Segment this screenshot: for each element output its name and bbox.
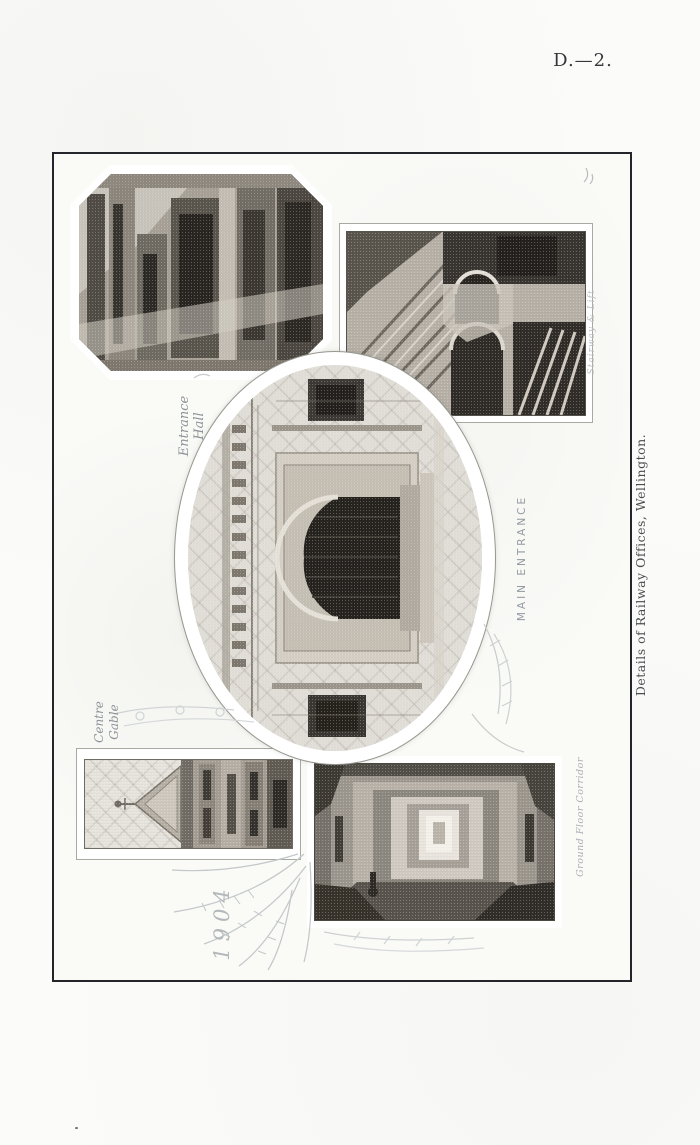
label-entrance-hall-line2: Hall (192, 396, 207, 456)
label-entrance-hall: Entrance Hall (176, 381, 208, 471)
photo-ground-floor-corridor (315, 764, 554, 920)
main-entrance-image (188, 365, 482, 751)
scanned-plate-page: D.—2. (0, 0, 700, 1145)
label-main-entrance: MAIN ENTRANCE (514, 498, 530, 618)
label-centre-gable-line2: Gable (107, 701, 122, 743)
plate-frame: Entrance Hall Stairway & Lift MAIN ENTRA… (52, 152, 632, 982)
label-year: 1904 (209, 892, 235, 952)
photo-mat-entrance-hall (70, 165, 332, 380)
centre-gable-image (85, 760, 292, 848)
photo-entrance-hall (79, 174, 323, 371)
plate-caption: Details of Railway Offices, Wellington. (632, 435, 648, 695)
photo-main-entrance (188, 365, 482, 751)
label-centre-gable: Centre Gable (92, 687, 122, 757)
entrance-hall-image (79, 174, 323, 371)
scan-speck (75, 1127, 78, 1129)
plate-number: D.—2. (538, 50, 628, 71)
label-ground-floor-corridor: Ground Floor Corridor (573, 762, 587, 872)
photo-mat-centre-gable (77, 749, 300, 859)
label-stairway-lift: Stairway & Lift (585, 277, 599, 387)
label-entrance-hall-line1: Entrance (177, 396, 192, 456)
photo-mat-main-entrance (175, 352, 495, 764)
corridor-image (315, 764, 554, 920)
photo-centre-gable (85, 760, 292, 848)
photo-mat-corridor (307, 756, 562, 928)
label-centre-gable-line1: Centre (92, 701, 107, 743)
